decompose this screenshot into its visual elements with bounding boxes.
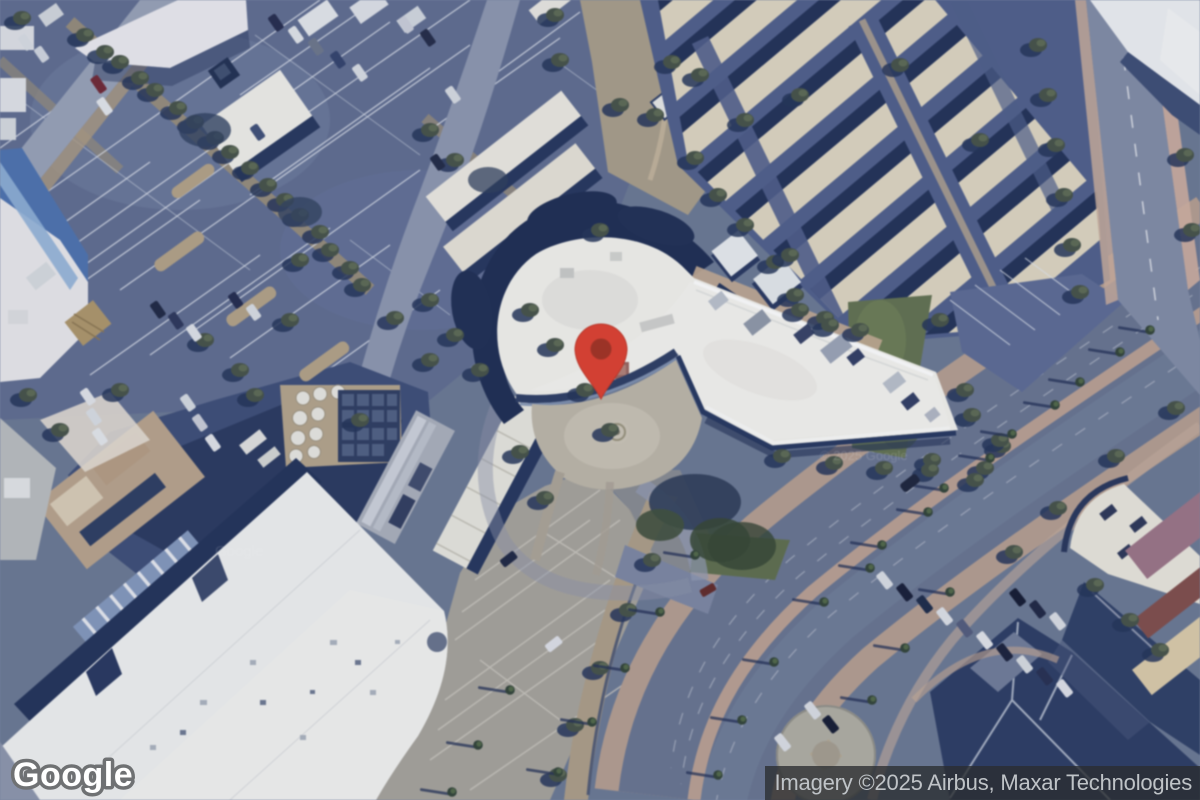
svg-text:Google: Google — [13, 756, 133, 794]
